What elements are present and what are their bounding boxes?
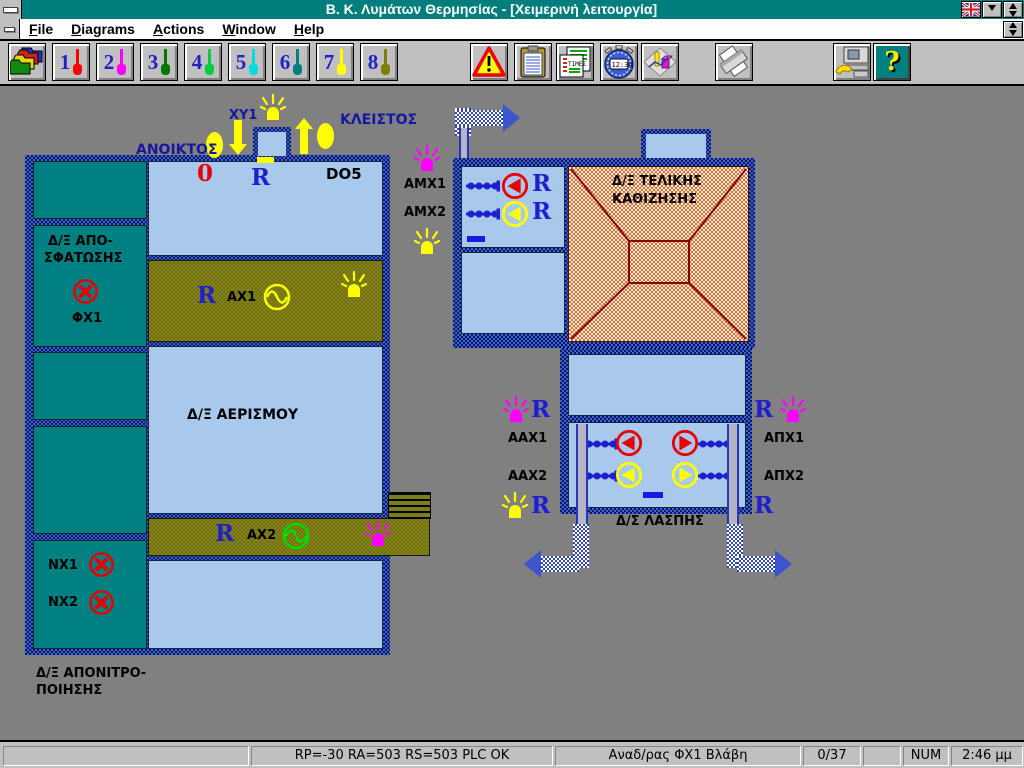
right-outflow-arrow-icon xyxy=(775,550,792,578)
settling-label-2: ΚΑΘΙΖΗΣΗΣ xyxy=(612,192,697,207)
tank-cell xyxy=(461,252,565,334)
aax2-lamp-icon xyxy=(505,492,525,519)
inflow-elbow-horizontal xyxy=(455,110,505,126)
svg-text:ΤΙΜΕΣ: ΤΙΜΕΣ xyxy=(568,61,586,68)
schedules-icon: ΤΙΜΕΣ xyxy=(558,46,592,78)
left-plant-structure xyxy=(25,155,390,655)
minimize-button[interactable] xyxy=(982,1,1002,18)
print-button[interactable] xyxy=(715,43,753,81)
status-panel-blank xyxy=(3,746,249,766)
toolbar: 12345678 ΤΙΜΕΣ xyxy=(0,41,1024,86)
diagram-4-button[interactable]: 4 xyxy=(184,43,222,81)
status-numlock-panel: NUM xyxy=(903,746,949,766)
amx2-lamp-icon xyxy=(417,228,437,255)
diagram-marker-icon xyxy=(381,49,390,75)
window-title: Β. Κ. Λυμάτων Θερμησίας - [Χειμερινή λει… xyxy=(22,0,961,19)
mixer-ax2-icon[interactable] xyxy=(281,521,311,551)
aax1-label: ΑΑΧ1 xyxy=(508,431,547,446)
status-alarm-panel: Αναδ/ρας ΦΧ1 Βλάβη xyxy=(555,746,801,766)
do-value: 0 xyxy=(197,162,213,185)
sludge-pipe-right xyxy=(727,424,739,528)
minimize-icon xyxy=(988,5,996,15)
open-arrow-shaft xyxy=(234,120,242,145)
diagram-marker-icon xyxy=(161,49,170,75)
ax2-r-flag: R xyxy=(215,522,234,545)
folders-icon xyxy=(10,47,44,77)
auger-icon xyxy=(584,437,618,451)
sludge-pipe-left xyxy=(576,424,588,528)
amx1-label: ΑΜΧ1 xyxy=(404,177,446,192)
alarm-warning-icon xyxy=(472,46,506,78)
do-r-flag: R xyxy=(251,166,270,189)
diagram-5-button[interactable]: 5 xyxy=(228,43,266,81)
valve-lamp-icon xyxy=(263,94,283,121)
denitrification-label-1: Δ/Ξ ΑΠΟΝΙΤΡΟ- xyxy=(36,666,146,681)
menu-help[interactable]: Help xyxy=(285,19,333,39)
apx1-label: ΑΠΧ1 xyxy=(764,431,804,446)
pump-apx1-icon[interactable] xyxy=(671,429,699,457)
amx1-r-flag: R xyxy=(532,172,551,195)
sludge-structure xyxy=(560,348,752,514)
help-button[interactable]: ? xyxy=(873,43,911,81)
title-bar: Β. Κ. Λυμάτων Θερμησίας - [Χειμερινή λει… xyxy=(0,0,1024,19)
do-sensor-label: DO5 xyxy=(326,165,362,183)
amx2-label: ΑΜΧ2 xyxy=(404,205,446,220)
aax1-lamp-icon xyxy=(506,396,526,423)
desludge-label-1: Δ/Ξ ΑΠΟ- xyxy=(48,234,113,249)
menu-actions[interactable]: Actions xyxy=(144,19,213,39)
auger-icon xyxy=(466,179,500,193)
diagram-overview-button[interactable] xyxy=(8,43,46,81)
closed-label: ΚΛΕΙΣΤΟΣ xyxy=(340,112,417,128)
diagram-8-button[interactable]: 8 xyxy=(360,43,398,81)
valve-state-bar xyxy=(257,157,274,163)
level-bar xyxy=(467,236,485,242)
status-clock-panel: 2:46 μμ xyxy=(951,746,1023,766)
status-plc-panel: RP=-30 RA=503 RS=503 PLC OK xyxy=(251,746,553,766)
alarms-button[interactable] xyxy=(470,43,508,81)
desludge-label-2: ΣΦΑΤΩΣΗΣ xyxy=(44,251,123,266)
diagram-marker-icon xyxy=(249,49,258,75)
amx2-r-flag: R xyxy=(532,200,551,223)
ax2-label: ΑΧ2 xyxy=(247,528,276,543)
trends-button[interactable] xyxy=(641,43,679,81)
status-bar: RP=-30 RA=503 RS=503 PLC OK Αναδ/ρας ΦΧ1… xyxy=(0,740,1024,768)
denitrification-label-2: ΠΟΙΗΣΗΣ xyxy=(36,683,102,698)
mixer-ax1-icon[interactable] xyxy=(262,282,292,312)
diagram-6-button[interactable]: 6 xyxy=(272,43,310,81)
aax2-label: ΑΑΧ2 xyxy=(508,469,547,484)
pump-aax1-icon[interactable] xyxy=(615,429,643,457)
diagram-3-button[interactable]: 3 xyxy=(140,43,178,81)
menu-diagrams[interactable]: Diagrams xyxy=(62,19,144,39)
close-indicator[interactable] xyxy=(317,123,334,149)
open-label: ΑΝΟΙΚΤΟΣ xyxy=(136,142,218,158)
application-window: ΧΥ1 ΑΝΟΙΚΤΟΣ ΚΛΕΙΣΤΟΣ 0 R DO5 Δ/Ξ ΑΠΟ- Σ… xyxy=(0,0,1024,768)
help-icon: ? xyxy=(884,47,899,77)
pump-amx1-icon[interactable] xyxy=(501,172,529,200)
apx1-r-flag: R xyxy=(754,398,773,421)
level-bar xyxy=(643,492,663,498)
restore-button[interactable] xyxy=(1003,1,1023,18)
aeration-tank xyxy=(148,346,383,514)
printer-icon xyxy=(716,45,752,79)
auger-icon xyxy=(466,207,500,221)
pump-fx1-icon[interactable] xyxy=(71,277,100,306)
chart-3d-icon xyxy=(642,45,678,79)
modem-phone-icon xyxy=(834,46,870,78)
pump-aax2-icon[interactable] xyxy=(615,461,643,489)
fx1-label: ΦΧ1 xyxy=(72,311,102,326)
child-control-menu-button[interactable] xyxy=(0,19,20,39)
child-restore-up-icon xyxy=(1009,18,1017,28)
event-log-button[interactable] xyxy=(514,43,552,81)
close-arrow-shaft xyxy=(300,129,308,154)
apx1-lamp-icon xyxy=(783,396,803,423)
restore-up-icon xyxy=(1009,0,1017,9)
menu-file[interactable]: File xyxy=(20,19,62,39)
aax2-r-flag: R xyxy=(531,494,550,517)
diagram-2-button[interactable]: 2 xyxy=(96,43,134,81)
close-arrow-icon[interactable] xyxy=(295,118,313,129)
pump-nx1-icon[interactable] xyxy=(87,550,116,579)
diagram-7-button[interactable]: 7 xyxy=(316,43,354,81)
apx2-r-flag: R xyxy=(754,494,773,517)
ax1-r-flag: R xyxy=(197,284,216,307)
nx2-label: ΝΧ2 xyxy=(48,595,78,610)
settling-label-1: Δ/Ξ ΤΕΛΙΚΗΣ xyxy=(612,174,702,189)
diagram-canvas: ΧΥ1 ΑΝΟΙΚΤΟΣ ΚΛΕΙΣΤΟΣ 0 R DO5 Δ/Ξ ΑΠΟ- Σ… xyxy=(0,0,1024,768)
nx1-label: ΝΧ1 xyxy=(48,558,78,573)
diagram-marker-icon xyxy=(293,49,302,75)
outlet-band xyxy=(568,354,746,416)
stopwatch-icon: 12:34 xyxy=(602,45,636,79)
child-control-menu-icon xyxy=(4,27,15,32)
aax1-r-flag: R xyxy=(531,398,550,421)
auger-icon xyxy=(584,469,618,483)
sludge-label: Δ/Σ ΛΑΣΠΗΣ xyxy=(616,514,704,529)
left-outflow-horizontal xyxy=(541,556,579,572)
communications-button[interactable] xyxy=(833,43,871,81)
open-arrow-icon[interactable] xyxy=(229,144,247,155)
left-outflow-arrow-icon xyxy=(524,550,541,578)
ax2-lamp-icon xyxy=(368,520,388,547)
overflow-grate xyxy=(388,492,431,519)
menu-window[interactable]: Window xyxy=(213,19,285,39)
language-flag-button[interactable] xyxy=(961,1,981,18)
tank-cell xyxy=(148,560,383,649)
diagram-marker-icon xyxy=(337,49,346,75)
valve-xy1[interactable] xyxy=(253,127,291,161)
apx2-label: ΑΠΧ2 xyxy=(764,469,804,484)
window-control-menu-button[interactable] xyxy=(0,0,22,19)
diagram-marker-icon xyxy=(73,49,82,75)
amx1-lamp-icon xyxy=(417,145,437,172)
ax1-label: ΑΧ1 xyxy=(227,290,256,305)
tank-cell xyxy=(33,161,147,219)
tank-cell xyxy=(33,352,147,420)
menu-bar: File Diagrams Actions Window Help xyxy=(0,19,1024,41)
child-restore-button[interactable] xyxy=(1003,21,1023,38)
control-menu-icon xyxy=(3,7,18,13)
pump-amx2-icon[interactable] xyxy=(501,200,529,228)
diagram-marker-icon xyxy=(205,49,214,75)
aeration-label: Δ/Ξ ΑΕΡΙΣΜΟΥ xyxy=(187,407,298,423)
diagram-1-button[interactable]: 1 xyxy=(52,43,90,81)
schedules-button[interactable]: ΤΙΜΕΣ xyxy=(556,43,594,81)
inflow-arrow-icon xyxy=(503,104,520,132)
clipboard-icon xyxy=(518,45,548,79)
ax1-lamp-icon xyxy=(344,271,364,298)
pump-apx2-icon[interactable] xyxy=(671,461,699,489)
pump-nx2-icon[interactable] xyxy=(87,588,116,617)
right-outflow-horizontal xyxy=(737,556,777,572)
svg-text:12:34: 12:34 xyxy=(612,61,633,69)
status-counter-panel: 0/37 xyxy=(803,746,861,766)
timers-button[interactable]: 12:34 xyxy=(600,43,638,81)
child-restore-down-icon xyxy=(1009,30,1017,40)
tank-cell xyxy=(33,426,147,534)
uk-flag-icon xyxy=(962,3,980,16)
status-panel-blank xyxy=(863,746,901,766)
diagram-marker-icon xyxy=(117,49,126,75)
